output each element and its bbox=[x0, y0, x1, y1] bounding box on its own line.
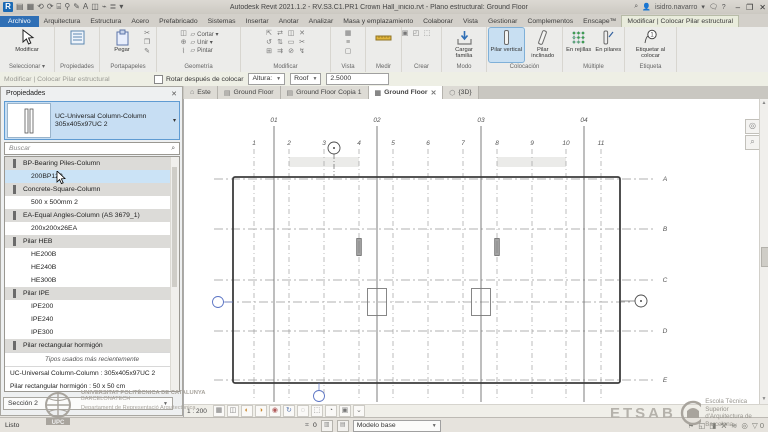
button-etiquetar-al-colocar[interactable]: 1Etiquetar al colocar bbox=[633, 28, 669, 62]
help-icon[interactable]: ? bbox=[722, 4, 726, 11]
scrollbar-thumb[interactable] bbox=[172, 167, 177, 287]
view-tab-ground-floor[interactable]: ▦Ground Floor✕ bbox=[369, 86, 444, 99]
button-label: Cargar familia bbox=[446, 47, 482, 59]
view-tab-label: Ground Floor bbox=[233, 89, 273, 96]
view-control-icons: ▦◫◐◑◉↻◌⬚◔▣⌄ bbox=[213, 405, 365, 417]
row-label: Concrete-Square-Column bbox=[23, 186, 100, 193]
svg-text:1: 1 bbox=[252, 140, 256, 147]
svg-text:B: B bbox=[663, 226, 668, 233]
row-label: Pilar rectangular hormigón bbox=[23, 342, 103, 349]
view-tab-este[interactable]: ⌂Este bbox=[184, 86, 218, 99]
tool-icon[interactable]: ✕ bbox=[297, 30, 307, 38]
tool-icon[interactable]: ✂ bbox=[142, 30, 152, 38]
height-offset-input[interactable]: 2.5000 bbox=[326, 73, 389, 85]
title-bar: R ▤▦⟲⟳⌸⚲✎A◫⌁≣▾ Autodesk Revit 2021.1.2 -… bbox=[0, 0, 768, 14]
ribbon-tab-archivo[interactable]: Archivo bbox=[0, 16, 39, 27]
tool-label[interactable]: Pintar bbox=[197, 48, 213, 54]
button-cargar-familia[interactable]: Cargar familia bbox=[446, 28, 482, 62]
tool-icon-grid: ▣◰⬚ bbox=[400, 28, 443, 38]
svg-text:4: 4 bbox=[357, 140, 361, 147]
tool-icon[interactable]: ⇉ bbox=[275, 48, 285, 56]
svg-text:10: 10 bbox=[562, 140, 570, 147]
chevron-down-icon[interactable]: ▾ bbox=[701, 3, 705, 11]
family-header-row[interactable]: Pilar IPE bbox=[5, 287, 179, 300]
type-selector[interactable]: UC-Universal Column-Column 305x405x97UC … bbox=[4, 101, 180, 140]
options-mode-label: Modificar | Colocar Pilar estructural bbox=[0, 76, 149, 83]
type-row[interactable]: HE300B bbox=[5, 274, 179, 287]
labeled-tool-rows: ▱Cortar ▾▱Unir ▾▱Pintar bbox=[191, 28, 219, 54]
chevron-down-icon[interactable]: ▾ bbox=[173, 117, 179, 124]
checkbox-icon[interactable] bbox=[154, 75, 163, 84]
tool-icon[interactable]: ⇱ bbox=[264, 30, 274, 38]
ribbon-tab-sistemas[interactable]: Sistemas bbox=[203, 16, 241, 27]
tool-icon[interactable]: ⊘ bbox=[286, 48, 296, 56]
selection-count: 0 bbox=[313, 422, 317, 429]
svg-text:02: 02 bbox=[373, 117, 381, 124]
row-label: HE200B bbox=[31, 251, 56, 258]
type-row[interactable]: IPE200 bbox=[5, 300, 179, 313]
view-control-icon[interactable]: ◑ bbox=[255, 405, 267, 417]
row-label: Pilar IPE bbox=[23, 290, 49, 297]
properties-palette: Propiedades ✕ UC-Universal Column-Column… bbox=[0, 86, 183, 416]
qat-icon[interactable]: ≣ bbox=[110, 2, 117, 12]
family-header-row[interactable]: BP-Bearing Piles-Column bbox=[5, 157, 179, 170]
ribbon-panel-seleccionar-: ModificarSeleccionar ▾ bbox=[0, 27, 55, 72]
svg-text:3: 3 bbox=[322, 140, 326, 147]
qat-icon[interactable]: ⟲ bbox=[37, 2, 44, 12]
search-icon: ⌕ bbox=[171, 145, 175, 153]
palette-bottom-combobox[interactable]: Sección 2 ▼ bbox=[3, 397, 173, 410]
button-measure[interactable] bbox=[368, 28, 399, 62]
family-icon bbox=[13, 185, 16, 194]
view-type-icon: ▦ bbox=[375, 89, 382, 97]
message-icon[interactable]: 🗨 bbox=[709, 3, 718, 11]
row-label: BP-Bearing Piles-Column bbox=[23, 160, 100, 167]
revit-logo-icon[interactable]: R bbox=[3, 2, 13, 12]
panel-label: Portapapeles bbox=[100, 63, 156, 72]
tool-icon[interactable]: ↺ bbox=[264, 39, 274, 47]
svg-text:6: 6 bbox=[426, 140, 430, 147]
type-row[interactable]: HE200B bbox=[5, 248, 179, 261]
signed-in-user[interactable]: isidro.navarro bbox=[655, 4, 697, 11]
type-row[interactable]: 200BP122 bbox=[5, 170, 179, 183]
status-message: Listo bbox=[0, 422, 305, 429]
tool-icon[interactable]: ≡ bbox=[343, 39, 353, 47]
panel-label: Múltiple bbox=[563, 63, 624, 72]
status-icon[interactable]: ◱ bbox=[698, 421, 705, 430]
qat-icon[interactable]: ▤ bbox=[16, 2, 24, 12]
type-row[interactable]: Pilar rectangular hormigón : 50 x 50 cm bbox=[5, 380, 179, 392]
view-control-icon[interactable]: ▦ bbox=[213, 405, 225, 417]
family-header-row[interactable]: Pilar rectangular hormigón bbox=[5, 339, 179, 352]
tool-icon[interactable]: ⇄ bbox=[275, 30, 285, 38]
row-label: 200x200x26EA bbox=[31, 225, 77, 232]
svg-text:A: A bbox=[662, 176, 667, 183]
status-icon[interactable]: ≋ bbox=[731, 421, 737, 430]
svg-text:9: 9 bbox=[530, 140, 534, 147]
ribbon-panel-propiedades: Propiedades bbox=[55, 27, 100, 72]
row-label: 200BP122 bbox=[31, 173, 63, 180]
small-icon-stack: ▦≡▢ bbox=[343, 28, 353, 56]
ribbon-tab-analizar[interactable]: Analizar bbox=[304, 16, 339, 27]
steering-wheel-icon[interactable]: ◎ bbox=[745, 119, 760, 134]
row-label: UC-Universal Column-Column : 305x405x97U… bbox=[10, 370, 155, 377]
close-icon[interactable]: ✕ bbox=[759, 3, 766, 12]
tool-icon[interactable]: ⬚ bbox=[422, 30, 432, 38]
svg-text:D: D bbox=[663, 328, 668, 335]
view-tab-label: Este bbox=[197, 89, 211, 96]
button-properties[interactable] bbox=[59, 28, 95, 62]
svg-text:7: 7 bbox=[461, 140, 465, 147]
qat-icon[interactable]: A bbox=[83, 2, 88, 12]
elevation-markers[interactable] bbox=[213, 142, 648, 402]
tool-icon-grid: ⇱⇄◫✕↺⇅▭✂⊞⇉⊘↯ bbox=[264, 28, 307, 56]
status-filter-icons: ⚑◱◨⚒≋◎▽ 0 bbox=[687, 421, 768, 430]
view-control-icon[interactable]: ◉ bbox=[269, 405, 281, 417]
tool-icon: ▱ bbox=[191, 31, 196, 38]
scrollbar-thumb[interactable] bbox=[761, 247, 768, 267]
height-level-select[interactable]: Roof▼ bbox=[290, 73, 321, 85]
tool-icon: ▱ bbox=[191, 47, 196, 54]
view-control-icon[interactable]: ▣ bbox=[339, 405, 351, 417]
status-bar: Listo ⌗ 0 ▥ ▤ Modelo base▼ ⚑◱◨⚒≋◎▽ 0 bbox=[0, 417, 768, 432]
button-pilar-inclinado[interactable]: Pilar inclinado bbox=[526, 28, 561, 62]
view-tab-label: Ground Floor Copia 1 bbox=[296, 89, 361, 96]
small-icon-stack: ◫⊕⌇ bbox=[179, 28, 189, 56]
view-control-icon[interactable]: ◫ bbox=[227, 405, 239, 417]
view-control-icon[interactable]: ◌ bbox=[297, 405, 309, 417]
ribbon-panel-modo: Cargar familiaModo bbox=[442, 27, 487, 72]
ribbon-tab-enscape-[interactable]: Enscape™ bbox=[578, 16, 621, 27]
svg-text:E: E bbox=[663, 377, 668, 384]
panel-label: Geometría bbox=[157, 63, 240, 72]
row-grid-lines: ABCDE bbox=[214, 176, 668, 384]
type-row[interactable]: HE240B bbox=[5, 261, 179, 274]
ribbon-tab-prefabricado[interactable]: Prefabricado bbox=[154, 16, 203, 27]
drawing-area[interactable]: ABCDE123456789101101020304 ◎ ⌕ ▲ ▼ 1 : 2… bbox=[183, 99, 768, 417]
tool-icon[interactable]: ✂ bbox=[297, 39, 307, 47]
qat-icon[interactable]: ⌸ bbox=[57, 2, 62, 12]
row-label: Tipos usados más recientemente bbox=[45, 356, 139, 363]
ribbon-tab-insertar[interactable]: Insertar bbox=[241, 16, 274, 27]
ribbon-tab-anotar[interactable]: Anotar bbox=[274, 16, 304, 27]
ribbon-panel-portapapeles: Pegar✂❐✎Portapapeles bbox=[100, 27, 157, 72]
ribbon-tab-arquitectura[interactable]: Arquitectura bbox=[39, 16, 86, 27]
search-icon[interactable]: ⌕ bbox=[634, 3, 638, 11]
view-control-bar: 1 : 200 ▦◫◐◑◉↻◌⬚◔▣⌄ bbox=[184, 404, 768, 417]
ribbon-tab-acero[interactable]: Acero bbox=[126, 16, 154, 27]
view-tab-ground-floor-copia-1[interactable]: ▤Ground Floor Copia 1 bbox=[281, 86, 369, 99]
ribbon-panel-vista: ▦≡▢Vista bbox=[331, 27, 366, 72]
view-type-icon: ▤ bbox=[287, 89, 294, 97]
filter-icon[interactable]: ▽ 0 bbox=[752, 421, 764, 430]
status-icon[interactable]: ⚒ bbox=[720, 421, 727, 430]
type-row[interactable]: 500 x 500mm 2 bbox=[5, 196, 179, 209]
ribbon-panel-geometr-a: ◫⊕⌇▱Cortar ▾▱Unir ▾▱PintarGeometría bbox=[157, 27, 241, 72]
view-control-icon[interactable]: ⬚ bbox=[311, 405, 323, 417]
type-row[interactable]: IPE240 bbox=[5, 313, 179, 326]
ribbon-tab-masa-y-emplazamiento[interactable]: Masa y emplazamiento bbox=[338, 16, 418, 27]
tool-icon[interactable]: ⇅ bbox=[275, 39, 285, 47]
type-name-line2: 305x405x97UC 2 bbox=[55, 121, 173, 129]
workset-toggle-icon[interactable]: ▥ bbox=[321, 420, 333, 432]
structural-plan: ABCDE123456789101101020304 bbox=[184, 99, 768, 404]
tool-icon[interactable]: ◫ bbox=[179, 30, 189, 38]
view-control-icon[interactable]: ⌄ bbox=[353, 405, 365, 417]
button-label: En rejillas bbox=[566, 47, 591, 53]
ribbon-tab-modificar-colocar-pilar-estruc[interactable]: Modificar | Colocar Pilar estructural bbox=[621, 15, 739, 27]
row-label: HE300B bbox=[31, 277, 56, 284]
svg-text:11: 11 bbox=[598, 140, 605, 147]
ribbon-tab-bar: ArchivoArquitecturaEstructuraAceroPrefab… bbox=[0, 14, 768, 27]
tool-icon[interactable]: ↯ bbox=[297, 48, 307, 56]
row-label: EA-Equal Angles-Column (AS 3679_1) bbox=[23, 212, 140, 219]
height-mode-select[interactable]: Altura:▼ bbox=[248, 73, 285, 85]
options-bar: Modificar | Colocar Pilar estructural Ro… bbox=[0, 72, 768, 87]
svg-text:04: 04 bbox=[580, 117, 588, 124]
button-label: Pilar vertical bbox=[490, 47, 522, 53]
row-label: IPE300 bbox=[31, 329, 53, 336]
window-title: Autodesk Revit 2021.1.2 - RV.S3.C1.PR1 C… bbox=[123, 4, 634, 11]
type-search-input[interactable]: Buscar ⌕ bbox=[4, 142, 180, 155]
design-option-icon[interactable]: ▤ bbox=[337, 420, 349, 432]
view-scale[interactable]: 1 : 200 bbox=[187, 408, 207, 415]
tool-label[interactable]: Unir ▾ bbox=[197, 39, 213, 46]
view-type-icon: ⌂ bbox=[190, 89, 194, 96]
small-icon-stack: ✂❐✎ bbox=[142, 28, 152, 56]
chevron-down-icon: ▼ bbox=[163, 401, 168, 407]
view-control-icon[interactable]: ◔ bbox=[325, 405, 337, 417]
family-header-row[interactable]: Concrete-Square-Column bbox=[5, 183, 179, 196]
svg-text:8: 8 bbox=[495, 140, 499, 147]
design-options-select[interactable]: Modelo base▼ bbox=[353, 420, 441, 432]
family-icon bbox=[13, 159, 16, 168]
panel-label: Vista bbox=[331, 63, 365, 72]
tool-icon[interactable]: ▦ bbox=[343, 30, 353, 38]
worksets-icon: ⌗ bbox=[305, 422, 309, 430]
type-row[interactable]: IPE300 bbox=[5, 326, 179, 339]
revit-window: R ▤▦⟲⟳⌸⚲✎A◫⌁≣▾ Autodesk Revit 2021.1.2 -… bbox=[0, 0, 768, 432]
minimize-icon[interactable]: – bbox=[736, 3, 740, 12]
row-label: Pilar rectangular hormigón : 50 x 50 cm bbox=[10, 383, 125, 390]
ribbon-panel-etiqueta: 1Etiquetar al colocarEtiqueta bbox=[625, 27, 677, 72]
row-label: HE240B bbox=[31, 264, 56, 271]
type-preview-image bbox=[7, 103, 51, 138]
tool-icon[interactable]: ⊕ bbox=[179, 39, 189, 47]
svg-text:2: 2 bbox=[286, 140, 291, 147]
scroll-down-icon[interactable]: ▼ bbox=[760, 395, 768, 404]
qat-icon[interactable]: ⟳ bbox=[47, 2, 54, 12]
ribbon: ModificarSeleccionar ▾PropiedadesPegar✂❐… bbox=[0, 27, 768, 73]
view-tab-label: {3D} bbox=[458, 89, 471, 96]
qat-icon[interactable]: ◫ bbox=[91, 2, 99, 12]
view-type-icon: ⬡ bbox=[449, 89, 455, 97]
recent-types-separator: Tipos usados más recientemente bbox=[5, 352, 179, 367]
halftone-bands bbox=[289, 157, 566, 167]
panel-label: Crear bbox=[402, 63, 441, 72]
button-en-pilares[interactable]: En pilares bbox=[595, 28, 623, 62]
panel-label: Modo bbox=[442, 63, 486, 72]
status-icon[interactable]: ◨ bbox=[709, 421, 716, 430]
tool-icon[interactable]: ▭ bbox=[286, 39, 296, 47]
view-tab-ground-floor[interactable]: ▤Ground Floor bbox=[218, 86, 281, 99]
tool-icon[interactable]: ⊞ bbox=[264, 48, 274, 56]
zoom-tool-icon[interactable]: ⌕ bbox=[745, 135, 760, 150]
panel-label: Propiedades bbox=[55, 63, 99, 72]
vertical-scrollbar[interactable]: ▲ ▼ bbox=[759, 99, 768, 404]
tool-icon: ▱ bbox=[191, 39, 196, 46]
window-controls[interactable]: –❐✕ bbox=[736, 3, 766, 12]
family-header-row[interactable]: EA-Equal Angles-Column (AS 3679_1) bbox=[5, 209, 179, 222]
row-label: IPE200 bbox=[31, 303, 53, 310]
panel-label: Colocación bbox=[487, 63, 562, 72]
ribbon-tab-gestionar[interactable]: Gestionar bbox=[483, 16, 522, 27]
ribbon-panel-colocaci-n: Pilar verticalPilar inclinadoColocación bbox=[487, 27, 563, 72]
family-icon bbox=[13, 211, 16, 220]
status-icon[interactable]: ◎ bbox=[741, 421, 748, 430]
family-icon bbox=[13, 289, 16, 298]
ribbon-panel-crear: ▣◰⬚Crear bbox=[402, 27, 442, 72]
tool-icon[interactable]: ▢ bbox=[343, 48, 353, 56]
family-icon bbox=[13, 237, 16, 246]
qat-icon[interactable]: ⌁ bbox=[102, 2, 107, 12]
button-pilar-vertical[interactable]: Pilar vertical bbox=[489, 28, 524, 62]
button-modificar[interactable]: Modificar bbox=[9, 28, 45, 62]
family-header-row[interactable]: Pilar HEB bbox=[5, 235, 179, 248]
svg-text:C: C bbox=[663, 277, 668, 284]
ribbon-tab-colaborar[interactable]: Colaborar bbox=[418, 16, 458, 27]
ribbon-tab-complementos[interactable]: Complementos bbox=[522, 16, 578, 27]
type-row[interactable]: 200x200x26EA bbox=[5, 222, 179, 235]
button-label: Pegar bbox=[114, 47, 129, 53]
type-dropdown-list: BP-Bearing Piles-Column200BP122Concrete-… bbox=[4, 156, 180, 392]
view-type-icon: ▤ bbox=[224, 89, 231, 97]
button-en-rejillas[interactable]: En rejillas bbox=[565, 28, 593, 62]
tool-icon[interactable]: ◰ bbox=[411, 30, 421, 38]
list-scrollbar[interactable] bbox=[170, 157, 179, 391]
scroll-up-icon[interactable]: ▲ bbox=[760, 99, 768, 108]
button-label: Modificar bbox=[15, 47, 39, 53]
view-tab--3d-[interactable]: ⬡{3D} bbox=[443, 86, 478, 99]
row-label: IPE240 bbox=[31, 316, 53, 323]
svg-text:03: 03 bbox=[477, 117, 485, 124]
close-icon[interactable]: ✕ bbox=[171, 90, 177, 98]
rotate-after-place-checkbox[interactable]: Rotar después de colocar bbox=[154, 75, 243, 84]
navigation-bar: ◎ ⌕ bbox=[745, 119, 759, 150]
user-icon: 👤 bbox=[642, 3, 651, 11]
svg-text:01: 01 bbox=[270, 117, 278, 124]
family-icon bbox=[13, 341, 16, 350]
ribbon-panel-medir: Medir bbox=[366, 27, 402, 72]
button-label: En pilares bbox=[595, 47, 621, 53]
status-icon[interactable]: ⚑ bbox=[687, 421, 694, 430]
view-control-icon[interactable]: ◐ bbox=[241, 405, 253, 417]
tool-icon[interactable]: ▣ bbox=[400, 30, 410, 38]
panel-label: Medir bbox=[366, 63, 401, 72]
type-row[interactable]: UC-Universal Column-Column : 305x405x97U… bbox=[5, 367, 179, 380]
row-label: Pilar HEB bbox=[23, 238, 52, 245]
svg-text:5: 5 bbox=[391, 140, 395, 147]
qat-icon[interactable]: ⚲ bbox=[64, 2, 70, 12]
qat-icon[interactable]: ▦ bbox=[27, 2, 35, 12]
button-pegar[interactable]: Pegar bbox=[104, 28, 140, 62]
view-control-icon[interactable]: ↻ bbox=[283, 405, 295, 417]
panel-label: Seleccionar ▾ bbox=[0, 63, 54, 72]
tool-icon[interactable]: ❐ bbox=[142, 39, 152, 47]
close-icon[interactable]: ✕ bbox=[431, 89, 437, 97]
tool-label[interactable]: Cortar ▾ bbox=[197, 31, 218, 38]
qat-icon[interactable]: ✎ bbox=[73, 2, 80, 12]
palette-title: Propiedades bbox=[6, 90, 45, 97]
ribbon-tab-estructura[interactable]: Estructura bbox=[85, 16, 126, 27]
tool-icon[interactable]: ◫ bbox=[286, 30, 296, 38]
button-label: Etiquetar al colocar bbox=[633, 47, 669, 59]
type-name-line1: UC-Universal Column-Column bbox=[55, 113, 173, 121]
view-tab-label: Ground Floor bbox=[384, 89, 427, 96]
tool-icon[interactable]: ✎ bbox=[142, 48, 152, 56]
row-label: 500 x 500mm 2 bbox=[31, 199, 78, 206]
ribbon-panel-modificar: ⇱⇄◫✕↺⇅▭✂⊞⇉⊘↯Modificar bbox=[241, 27, 331, 72]
ribbon-tab-vista[interactable]: Vista bbox=[458, 16, 483, 27]
panel-label: Modificar bbox=[241, 63, 330, 72]
tool-icon[interactable]: ⌇ bbox=[179, 48, 189, 56]
panel-label: Etiqueta bbox=[625, 63, 676, 72]
ribbon-panel-m-ltiple: En rejillasEn pilaresMúltiple bbox=[563, 27, 625, 72]
quick-access-toolbar[interactable]: R ▤▦⟲⟳⌸⚲✎A◫⌁≣▾ bbox=[0, 2, 123, 12]
restore-icon[interactable]: ❐ bbox=[746, 3, 753, 12]
button-label: Pilar inclinado bbox=[526, 47, 561, 59]
